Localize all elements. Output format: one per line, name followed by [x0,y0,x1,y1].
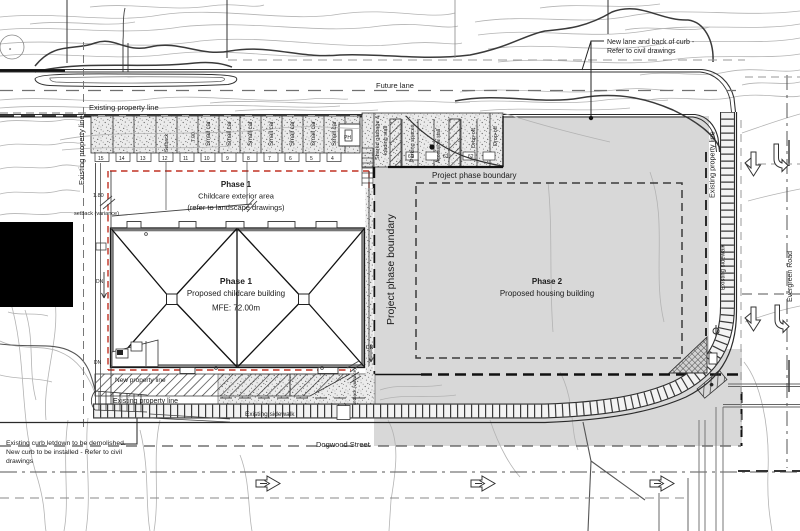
svg-text:Shared garbage &: Shared garbage & [375,115,381,160]
svg-text:PH: PH [344,135,351,141]
svg-text:7: 7 [268,156,271,162]
svg-text:New curb to be installed - Ref: New curb to be installed - Refer to civi… [6,449,122,456]
svg-text:15: 15 [98,156,104,162]
svg-text:Future lane: Future lane [376,81,414,90]
svg-text:New property line: New property line [115,377,166,384]
svg-text:Proposed childcare building: Proposed childcare building [187,289,285,298]
svg-text:Existing sidewalk: Existing sidewalk [245,411,295,418]
svg-text:Accessible stall: Accessible stall [436,129,442,163]
svg-text:Refer to civil drawings: Refer to civil drawings [607,48,676,55]
svg-text:9: 9 [226,156,229,162]
svg-text:13: 13 [140,156,146,162]
svg-text:Small car: Small car [332,121,338,146]
svg-text:Small car: Small car [290,121,296,146]
svg-text:Existing property line: Existing property line [77,115,86,185]
svg-text:1.80: 1.80 [93,193,104,199]
svg-text:11: 11 [183,156,188,162]
svg-text:loading stall: loading stall [383,126,389,155]
svg-text:14: 14 [119,156,125,162]
svg-text:Small car: Small car [248,121,254,146]
svg-text:Evergreen Road: Evergreen Road [787,251,794,302]
svg-text:6: 6 [289,156,292,162]
svg-text:Existing sidewalk: Existing sidewalk [721,243,727,290]
svg-text:Small car: Small car [269,121,275,146]
svg-text:60: 60 [408,154,414,160]
svg-text:Drop-off: Drop-off [493,126,499,146]
svg-text:Existing property line: Existing property line [113,398,178,405]
svg-text:Proposed housing building: Proposed housing building [500,289,594,298]
svg-text:4: 4 [331,156,334,162]
svg-text:Project phase boundary: Project phase boundary [385,213,397,325]
svg-text:Existing curb letdown to be de: Existing curb letdown to be demolished. [6,440,126,447]
svg-text:MFE: 72.00m: MFE: 72.00m [212,304,260,313]
svg-text:10: 10 [204,156,210,162]
svg-text:Existing property line: Existing property line [89,103,159,112]
svg-text:5: 5 [310,156,313,162]
svg-text:61: 61 [443,154,449,160]
svg-text:62: 62 [468,154,474,160]
svg-text:Childcare exterior area: Childcare exterior area [198,192,275,201]
svg-text:Setback: Setback [164,133,170,152]
svg-text:New lane and back of curb -: New lane and back of curb - [607,39,695,46]
svg-text:Project phase boundary: Project phase boundary [432,171,517,180]
svg-text:Small car: Small car [206,121,212,146]
svg-text:Existing property line: Existing property line [708,131,717,198]
svg-text:8: 8 [247,156,250,162]
svg-text:Drop-off: Drop-off [471,128,477,148]
svg-text:DN: DN [96,279,104,285]
svg-text:(refer to landscape drawings): (refer to landscape drawings) [187,203,285,212]
svg-text:Small car: Small car [311,121,317,146]
svg-text:setback (variance): setback (variance) [74,211,119,217]
svg-text:Small car: Small car [227,121,233,146]
svg-text:Phase 1: Phase 1 [221,180,252,189]
svg-text:setback (variance): setback (variance) [352,368,357,405]
svg-text:Phase 2: Phase 2 [532,277,563,286]
svg-text:Dogwood Street: Dogwood Street [316,440,371,449]
svg-text:7.00: 7.00 [191,132,197,142]
svg-text:12: 12 [162,156,168,162]
svg-text:drawings: drawings [6,458,34,465]
svg-text:DN: DN [366,345,374,351]
svg-text:Phase 1: Phase 1 [220,276,252,286]
svg-text:DN: DN [94,360,102,366]
